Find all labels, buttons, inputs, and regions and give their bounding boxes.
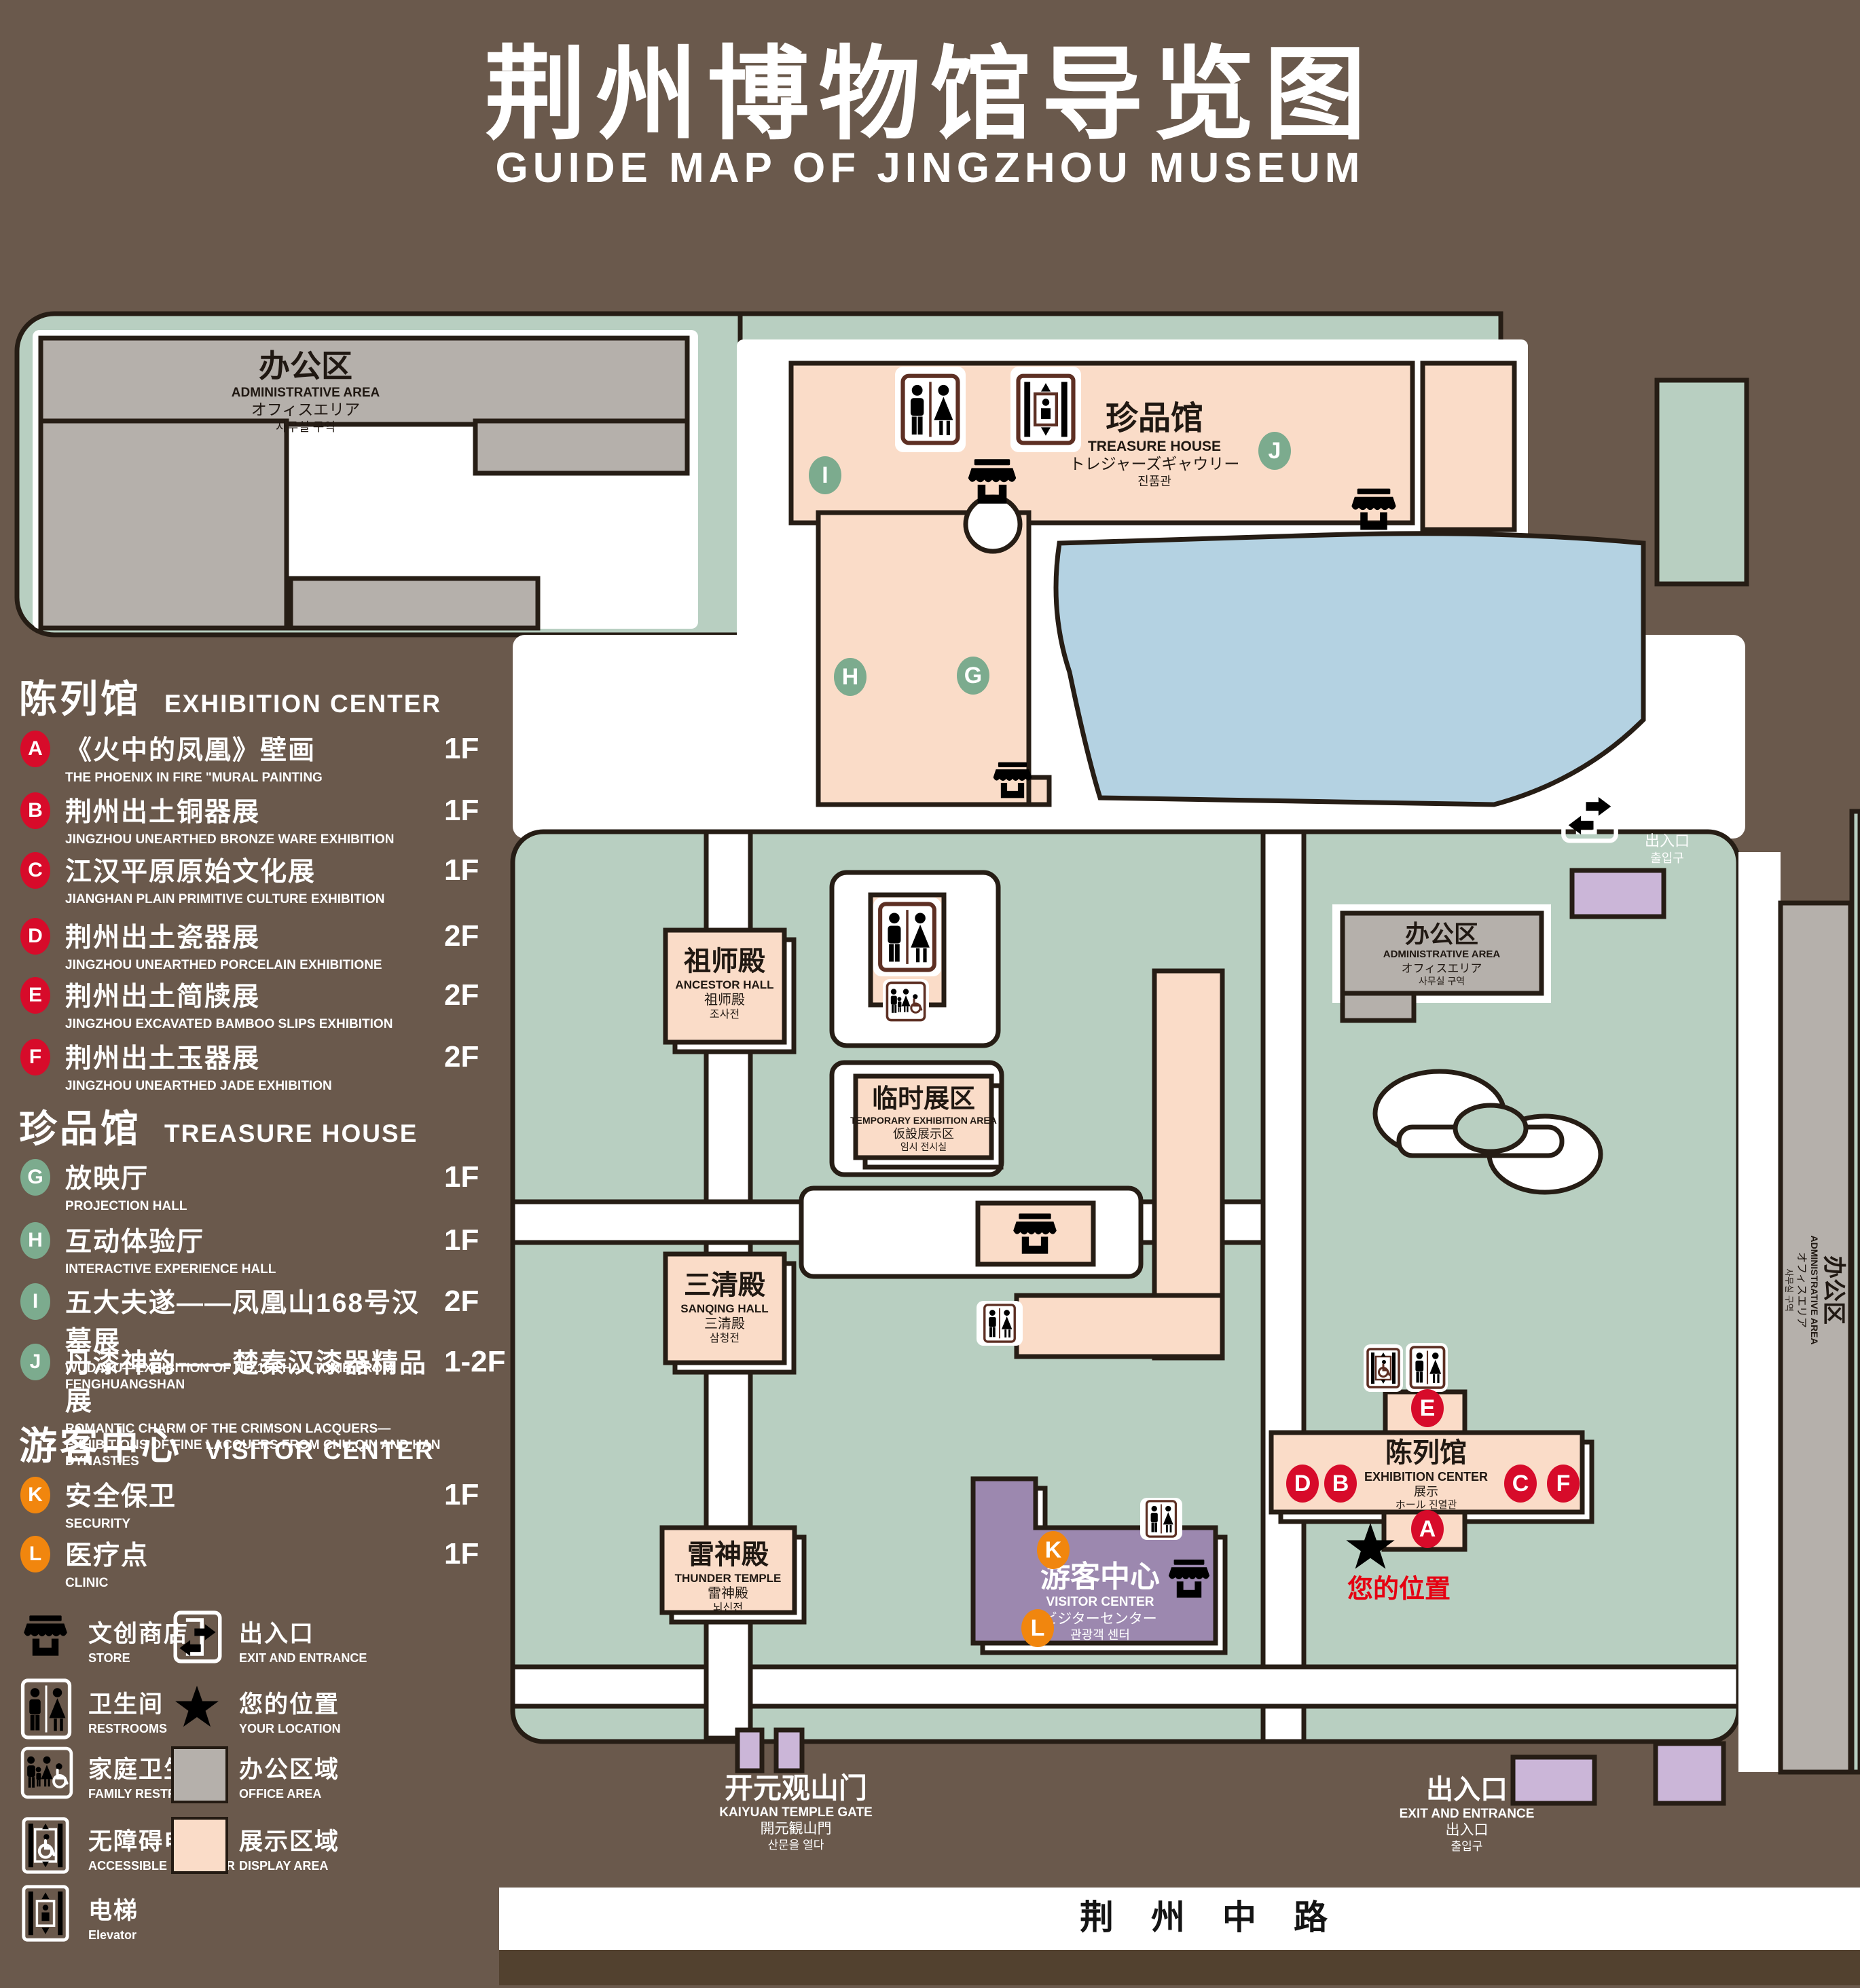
map-marker-G: G: [957, 657, 989, 695]
restroom-icon: [877, 902, 937, 972]
sanqing-hall-label: 三清殿 SANQING HALL 三清殿 삼청전: [680, 1269, 768, 1346]
badge-L: L: [20, 1536, 50, 1572]
legend-section-treasure-house: 珍品馆TREASURE HOUSE: [19, 1099, 418, 1154]
legend-display-area: 展示区域DISPLAY AREA: [239, 1822, 340, 1873]
temporary-exhibition-label: 临时展区 TEMPORARY EXHIBITION AREA 仮設展示区 임시 …: [850, 1084, 997, 1154]
elevator-icon: [1016, 371, 1076, 448]
exit-entrance-label-top: 出入口 EXIT AND ENTRANCE 出入口 출입구: [1596, 782, 1738, 866]
map-marker-D: D: [1286, 1465, 1319, 1503]
legend-item-C: C 江汉平原原始文化展JIANGHAN PLAIN PRIMITIVE CULT…: [12, 851, 508, 908]
map-marker-B: B: [1324, 1465, 1357, 1503]
badge-C: C: [20, 852, 50, 889]
badge-A: A: [20, 731, 50, 767]
store-icon: [1165, 1555, 1213, 1602]
store-icon: [1010, 1209, 1060, 1259]
map-marker-I: I: [809, 456, 841, 494]
restroom-icon: [1409, 1346, 1446, 1389]
map-marker-C: C: [1504, 1465, 1537, 1503]
exit-entrance-label-bottom: 出入口 EXIT AND ENTRANCE 出入口 출입구: [1400, 1773, 1535, 1854]
legend-section-exhibition-center: 陈列馆EXHIBITION CENTER: [19, 669, 441, 724]
your-location-star-icon: [174, 1684, 220, 1730]
store-icon: [990, 758, 1035, 803]
legend-item-H: H 互动体验厅INTERACTIVE EXPERIENCE HALL 1F: [12, 1221, 508, 1278]
legend-item-G: G 放映厅PROJECTION HALL 1F: [12, 1158, 508, 1215]
badge-F: F: [20, 1039, 50, 1075]
elevator-icon: [20, 1885, 71, 1942]
map-marker-A: A: [1411, 1510, 1444, 1548]
store-icon: [964, 454, 1020, 509]
legend-elevator: 电梯Elevator: [88, 1892, 139, 1943]
page-subtitle: GUIDE MAP OF JINGZHOU MUSEUM: [0, 144, 1860, 192]
page-title: 荆州博物馆导览图: [0, 12, 1860, 160]
restroom-icon: [1144, 1500, 1179, 1538]
map-marker-H: H: [834, 658, 867, 696]
road-label: 荆州中路: [1080, 1898, 1365, 1936]
restroom-icon: [20, 1678, 72, 1739]
exhibition-center-label: 陈列馆 EXHIBITION CENTER 展示 ホール 진열관: [1364, 1437, 1488, 1513]
store-icon: [1348, 483, 1400, 535]
kaiyuan-gate-label: 开元观山门 KAIYUAN TEMPLE GATE 開元観山門 산문을 열다: [719, 1771, 873, 1853]
badge-B: B: [20, 792, 50, 829]
map-marker-F: F: [1547, 1465, 1580, 1503]
treasure-house-label: 珍品馆 TREASURE HOUSE トレジャーズギャウリー 진품관: [1070, 399, 1240, 490]
badge-K: K: [20, 1477, 50, 1513]
legend-section-visitor-center: 游客中心VISITOR CENTER: [19, 1416, 435, 1471]
badge-G: G: [20, 1159, 50, 1196]
accessible-elevator-icon: [1366, 1347, 1400, 1389]
legend-item-F: F 荆州出土玉器展JINGZHOU UNEARTHED JADE EXHIBIT…: [12, 1037, 508, 1094]
map-marker-E: E: [1411, 1389, 1444, 1427]
legend-item-L: L 医疗点CLINIC 1F: [12, 1534, 508, 1591]
legend-item-D: D 荆州出土瓷器展JINGZHOU UNEARTHED PORCELAIN EX…: [12, 917, 508, 974]
admin-area-label-top: 办公区 ADMINISTRATIVE AREA オフィスエリア 사무실 구역: [232, 348, 380, 435]
legend-item-K: K 安全保卫SECURITY 1F: [12, 1475, 508, 1532]
admin-area-label-mid: 办公区 ADMINISTRATIVE AREA オフィスエリア 사무실 구역: [1383, 919, 1501, 989]
ancestor-hall-label: 祖师殿 ANCESTOR HALL 祖师殿 조사전: [675, 945, 773, 1023]
legend-exit-entrance: 出入口EXIT AND ENTRANCE: [239, 1615, 367, 1665]
map-marker-J: J: [1258, 432, 1291, 470]
your-location-star-icon: [1345, 1521, 1396, 1572]
legend-restrooms: 卫生间RESTROOMS: [88, 1685, 167, 1736]
badge-D: D: [20, 918, 50, 955]
map-marker-K: K: [1037, 1531, 1070, 1569]
admin-area-label-right: 办公区 ADMINISTRATIVE AREA オフィスエリア 사무실 구역: [1783, 1236, 1848, 1345]
badge-H: H: [20, 1222, 50, 1259]
map-marker-L: L: [1021, 1609, 1054, 1647]
legend-item-B: B 荆州出土铜器展JINGZHOU UNEARTHED BRONZE WARE …: [12, 791, 508, 848]
family-restroom-icon: [885, 981, 927, 1022]
accessible-elevator-icon: [20, 1817, 71, 1874]
legend-item-A: A 《火中的凤凰》壁画THE PHOENIX IN FIRE "MURAL PA…: [12, 729, 508, 786]
legend-item-E: E 荆州出土简牍展JINGZHOU EXCAVATED BAMBOO SLIPS…: [12, 976, 508, 1033]
restroom-icon: [980, 1304, 1019, 1343]
store-icon: [20, 1610, 71, 1661]
office-area-swatch: [171, 1746, 228, 1803]
badge-E: E: [20, 977, 50, 1014]
visitor-center-label: 游客中心 VISITOR CENTER ビジターセンター 관광객 센터: [1040, 1559, 1160, 1643]
restroom-icon: [900, 371, 960, 448]
badge-J: J: [20, 1344, 50, 1380]
display-area-swatch: [171, 1817, 228, 1874]
badge-I: I: [20, 1283, 50, 1320]
your-location-label: 您的位置: [1347, 1575, 1451, 1604]
thunder-temple-label: 雷神殿 THUNDER TEMPLE 雷神殿 뇌신전: [675, 1539, 782, 1616]
exit-entrance-icon: [171, 1610, 224, 1663]
legend-your-location: 您的位置YOUR LOCATION: [239, 1685, 341, 1736]
family-restroom-icon: [20, 1746, 73, 1799]
legend-office-area: 办公区域OFFICE AREA: [239, 1750, 340, 1801]
